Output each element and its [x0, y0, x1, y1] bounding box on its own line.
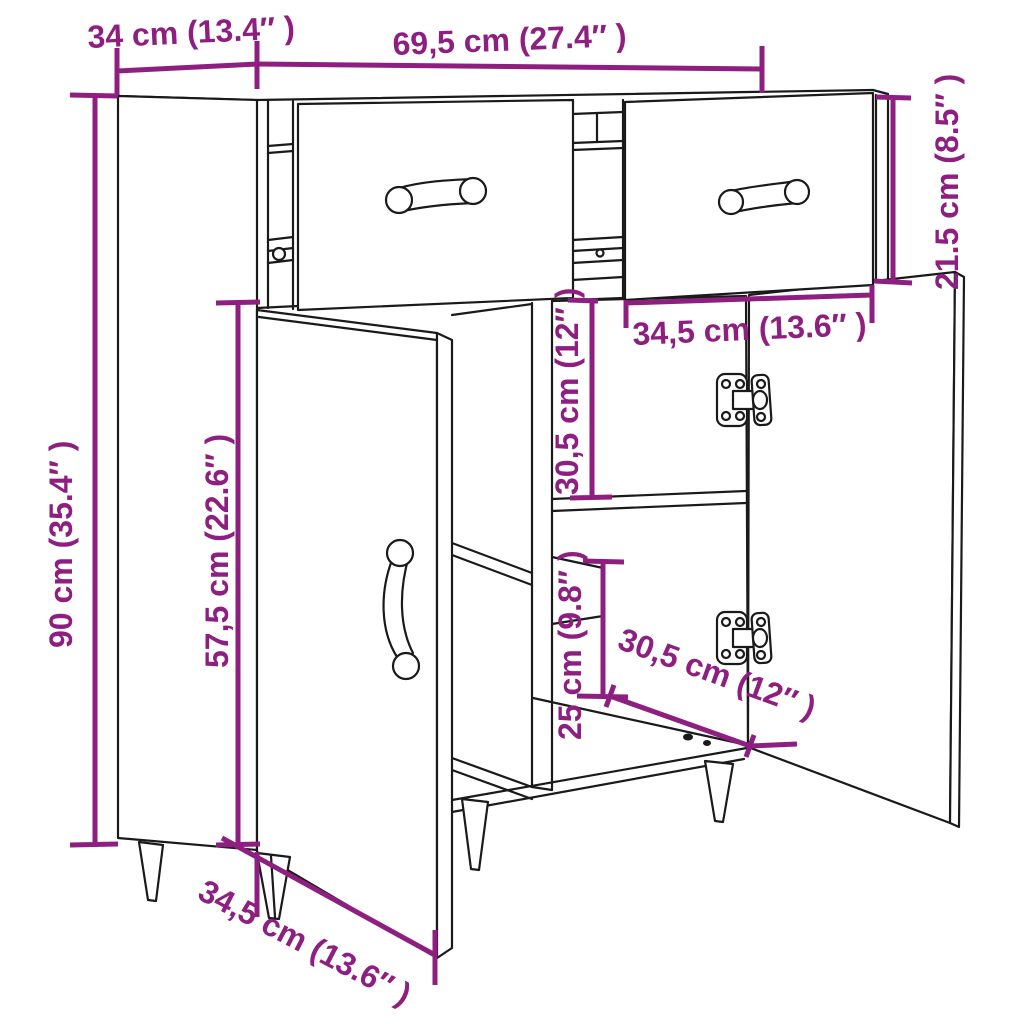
leg [462, 799, 488, 870]
pin-hole [683, 734, 693, 741]
bottom-rail [452, 748, 747, 812]
dim-label-top-depth: 34 cm (13.4″ ) [87, 9, 296, 55]
left-drawer-slide [257, 101, 298, 309]
center-drawer-slide [572, 100, 623, 300]
furniture-dimension-diagram: 34 cm (13.4″ ) 69,5 cm (27.4″ ) 21.5 cm … [0, 0, 1024, 1024]
left-drawer [298, 100, 573, 310]
dim-label-upper-compartment: 30,5 cm (12″ ) [549, 288, 585, 495]
cabinet-line-art [118, 90, 964, 958]
left-shelf [452, 543, 532, 585]
leg [139, 842, 163, 901]
leg [705, 761, 733, 822]
dim-label-total-height: 90 cm (35.4″ ) [43, 441, 79, 648]
dim-label-top-width: 69,5 cm (27.4″ ) [392, 17, 627, 62]
dim-label-lower-compartment: 25 cm (9.8″ ) [552, 550, 588, 740]
pin-hole [703, 740, 711, 746]
hinge-top-icon [717, 374, 772, 426]
dim-drawer-height-line [874, 97, 912, 283]
diagram-svg: 34 cm (13.4″ ) 69,5 cm (27.4″ ) 21.5 cm … [0, 0, 1024, 1024]
right-wall-edge [873, 90, 888, 290]
dim-label-drawer-section-height: 21.5 cm (8.5″ ) [929, 74, 965, 290]
dim-label-door-height: 57,5 cm (22.6″ ) [199, 434, 235, 668]
right-drawer [625, 93, 873, 300]
